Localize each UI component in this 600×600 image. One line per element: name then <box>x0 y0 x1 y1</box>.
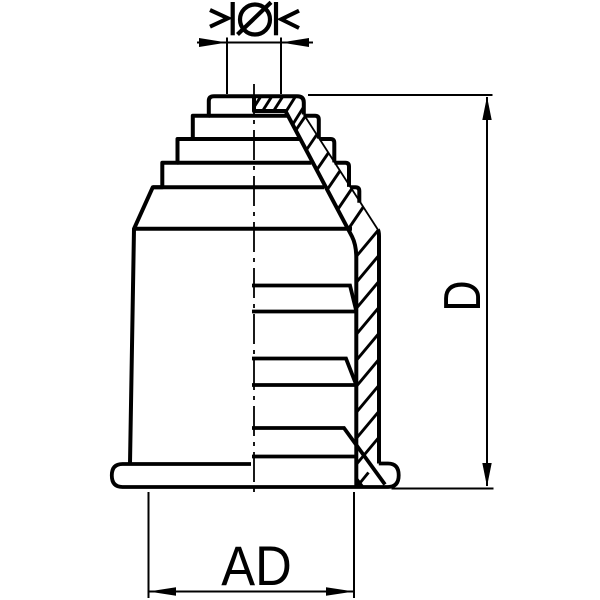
svg-text:D: D <box>433 281 491 312</box>
svg-text:AD: AD <box>221 534 292 597</box>
